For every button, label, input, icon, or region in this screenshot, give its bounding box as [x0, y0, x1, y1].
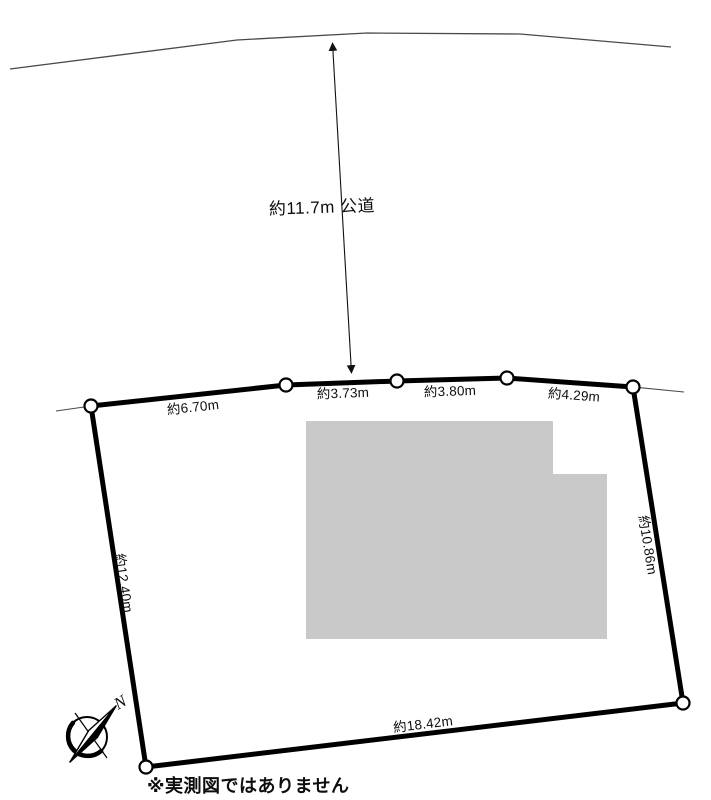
edge-label-top-4: 約4.29m: [547, 386, 600, 405]
edge-label-top-2: 約3.73m: [317, 385, 370, 402]
vertex-marker: [85, 400, 98, 413]
edge-label-top-1: 約6.70m: [166, 397, 220, 418]
vertex-marker: [501, 372, 514, 385]
site-plan-diagram: 約11.7m 公道 約6.70m 約3.73m 約3.80m 約4.29m 約1…: [0, 0, 711, 800]
vertex-marker: [280, 379, 293, 392]
road-width-label: 約11.7m 公道: [269, 196, 376, 219]
vertex-marker: [627, 381, 640, 394]
road-lower-line-right: [633, 387, 684, 392]
vertex-marker: [391, 375, 404, 388]
vertex-marker: [677, 697, 690, 710]
edge-label-top-3: 約3.80m: [424, 383, 477, 400]
compass-icon: N: [67, 690, 131, 762]
disclaimer-note: ※実測図ではありません: [147, 775, 349, 796]
edge-label-left: 約12.40m: [112, 552, 136, 614]
site-plan-page: 約11.7m 公道 約6.70m 約3.73m 約3.80m 約4.29m 約1…: [0, 0, 711, 800]
vertex-marker: [140, 761, 153, 774]
road-upper-line: [10, 33, 671, 69]
building-footprint: [306, 421, 607, 639]
